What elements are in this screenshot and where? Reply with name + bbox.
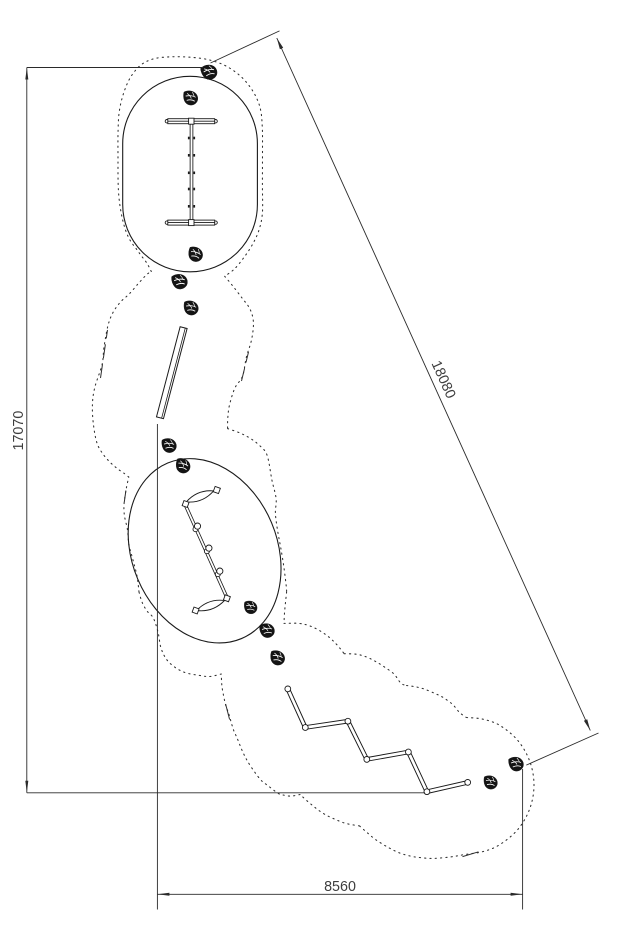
svg-text:8560: 8560	[324, 879, 356, 895]
svg-text:17070: 17070	[11, 411, 27, 451]
